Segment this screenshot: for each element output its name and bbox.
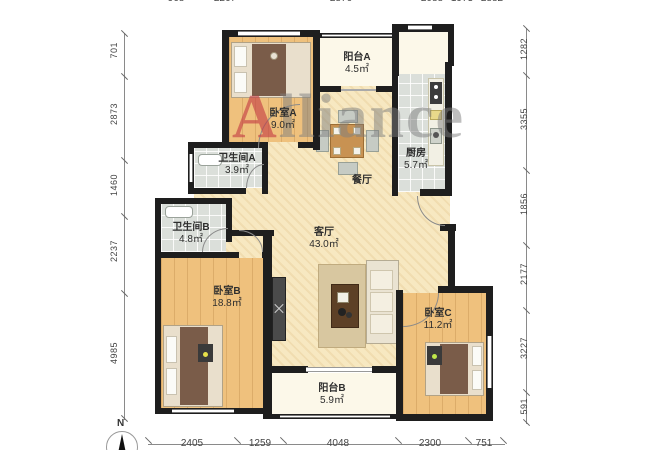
- room-label-balcony-a: 阳台A 4.5㎡: [343, 52, 370, 76]
- window: [189, 154, 193, 182]
- room-area: 11.2㎡: [424, 320, 453, 332]
- room-area: 5.9㎡: [318, 395, 345, 407]
- room-name: 阳台A: [343, 52, 370, 64]
- room-name: 卧室C: [424, 308, 453, 320]
- room-label-living: 客厅 43.0㎡: [309, 227, 338, 251]
- room-area: 9.0㎡: [269, 120, 296, 132]
- dim-left-4: 4985: [109, 342, 119, 364]
- lamp: [203, 352, 208, 357]
- dim-bottom-2: 4048: [327, 438, 349, 449]
- room-area: 18.8㎡: [212, 298, 241, 310]
- room-label-bedroom-b: 卧室B 18.8㎡: [212, 286, 241, 310]
- window: [280, 415, 390, 418]
- room-name: 客厅: [309, 227, 338, 239]
- wall: [396, 290, 403, 421]
- sliding-door: [306, 367, 374, 372]
- room-name: 卧室B: [212, 286, 241, 298]
- dimension-tick: [280, 437, 287, 444]
- table-item: [337, 292, 349, 303]
- pillow: [166, 336, 177, 363]
- window: [172, 409, 234, 413]
- room-label-dining: 餐厅: [352, 175, 372, 187]
- dim-left-1: 2873: [109, 103, 119, 125]
- wall: [420, 189, 447, 196]
- wall: [263, 366, 308, 373]
- dimension-line-right: [526, 28, 527, 424]
- table-item: [346, 312, 352, 318]
- compass-north-label: N: [117, 418, 124, 429]
- wall: [448, 228, 455, 290]
- dimension-line-left: [124, 33, 125, 420]
- pillow: [472, 346, 482, 366]
- watermark-rest: lliance: [279, 83, 465, 151]
- room-label-bedroom-c: 卧室C 11.2㎡: [424, 308, 453, 332]
- blanket: [180, 327, 208, 405]
- room-name: 卧室A: [269, 108, 296, 120]
- room-name: 卫生间A: [218, 153, 255, 165]
- balcony-window: [322, 34, 392, 37]
- alliance-watermark: Alliance: [232, 86, 465, 148]
- dim-bottom-3: 2300: [419, 438, 441, 449]
- room-area: 4.8㎡: [172, 234, 209, 246]
- dimension-tick: [234, 437, 241, 444]
- room-area: 43.0㎡: [309, 239, 338, 251]
- dim-right-2: 1856: [519, 193, 529, 215]
- dim-left-3: 2237: [109, 240, 119, 262]
- wall: [438, 286, 493, 293]
- dim-right-5: 591: [519, 398, 529, 415]
- dim-left-2: 1460: [109, 174, 119, 196]
- entry-alcove-floor: [398, 32, 448, 74]
- dim-top-4: 1973: [451, 0, 473, 4]
- room-label-balcony-b: 阳台B 5.9㎡: [318, 383, 345, 407]
- dim-bottom-1: 1259: [249, 438, 271, 449]
- pillow: [234, 46, 247, 67]
- room-label-bathroom-a: 卫生间A 3.9㎡: [218, 153, 255, 177]
- dim-right-0: 1282: [519, 38, 529, 60]
- room-area: 3.9㎡: [218, 165, 255, 177]
- bathroom-b-basin: [165, 206, 193, 218]
- dimension-tick: [395, 437, 402, 444]
- blanket: [440, 344, 468, 394]
- room-name: 厨房: [404, 148, 428, 160]
- window: [238, 31, 300, 36]
- wall: [222, 30, 229, 148]
- room-label-bedroom-a: 卧室A 9.0㎡: [269, 108, 296, 132]
- room-area: 4.5㎡: [343, 64, 370, 76]
- wall: [188, 188, 246, 194]
- room-label-bathroom-b: 卫生间B 4.8㎡: [172, 222, 209, 246]
- room-name: 餐厅: [352, 175, 372, 187]
- dim-top-2: 2876: [330, 0, 352, 4]
- dimension-tick: [500, 437, 507, 444]
- pillow: [166, 368, 177, 395]
- dim-left-0: 701: [109, 42, 119, 59]
- dim-top-3: 2088: [421, 0, 443, 4]
- coffee-table: [331, 284, 359, 328]
- floorplan-canvas: Alliance 阳台A 4.5㎡ 卧室A 9.0㎡ 卫生间A 3.9㎡ 厨房 …: [0, 0, 650, 450]
- sofa-cushion: [370, 314, 393, 334]
- dining-chair: [338, 162, 358, 175]
- dimension-tick: [465, 437, 472, 444]
- wall: [448, 24, 454, 66]
- dim-top-5: 2882: [481, 0, 503, 4]
- room-name: 阳台B: [318, 383, 345, 395]
- pillow: [472, 370, 482, 390]
- dim-right-1: 3355: [519, 108, 529, 130]
- wall: [263, 236, 272, 416]
- compass-needle-icon: [117, 434, 127, 450]
- dim-top-1: 2267: [214, 0, 236, 4]
- wall: [155, 198, 232, 204]
- wall: [372, 366, 398, 373]
- sofa-cushion: [370, 292, 393, 312]
- wall: [392, 28, 399, 76]
- dim-bottom-0: 2405: [181, 438, 203, 449]
- wall: [396, 414, 493, 421]
- dim-bottom-4: 751: [476, 438, 493, 449]
- dimension-tick: [145, 437, 152, 444]
- wall: [155, 198, 161, 414]
- room-name: 卫生间B: [172, 222, 209, 234]
- window: [408, 25, 432, 30]
- room-label-kitchen: 厨房 5.7㎡: [404, 148, 428, 172]
- lamp: [432, 354, 437, 359]
- sofa-cushion: [370, 270, 393, 290]
- room-area: 5.7㎡: [404, 160, 428, 172]
- dim-top-0: 968: [168, 0, 185, 4]
- table-item: [338, 308, 346, 316]
- dim-right-4: 3227: [519, 337, 529, 359]
- bed-cushion: [270, 52, 278, 60]
- window: [487, 336, 492, 388]
- wall: [155, 252, 239, 258]
- dim-right-3: 2177: [519, 263, 529, 285]
- ac-unit: [272, 277, 286, 341]
